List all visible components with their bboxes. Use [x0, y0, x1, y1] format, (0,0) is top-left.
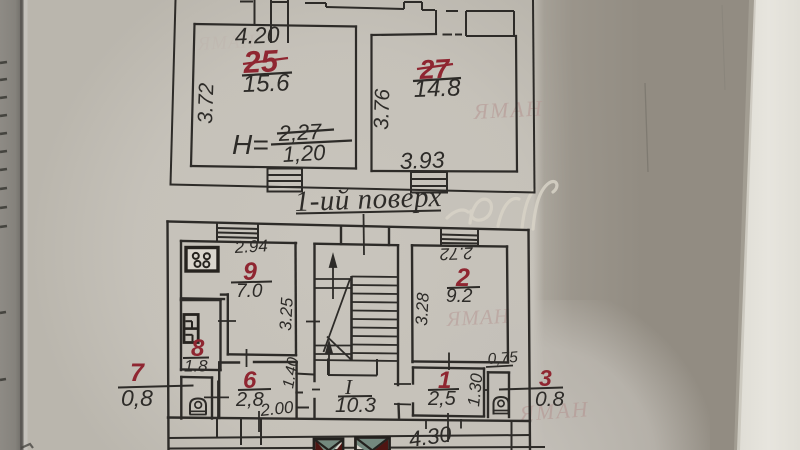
svg-text:1.30: 1.30 [464, 372, 486, 407]
svg-text:0,75: 0,75 [487, 349, 519, 368]
svg-text:2,5: 2,5 [427, 388, 457, 410]
svg-text:3.93: 3.93 [399, 146, 445, 174]
svg-text:2.94: 2.94 [233, 236, 268, 257]
svg-text:0,8: 0,8 [121, 385, 153, 411]
svg-text:2.00: 2.00 [258, 398, 294, 421]
svg-text:3.72: 3.72 [194, 82, 218, 124]
svg-text:0.8: 0.8 [535, 388, 565, 411]
svg-text:7: 7 [130, 359, 145, 387]
svg-text:3.76: 3.76 [370, 88, 394, 130]
svg-text:2.72: 2.72 [439, 243, 474, 263]
svg-text:H=: H= [232, 129, 269, 160]
svg-text:ЯМАН: ЯМАН [445, 304, 511, 331]
svg-text:4.30: 4.30 [407, 421, 454, 450]
svg-text:3.28: 3.28 [412, 292, 433, 327]
svg-text:1.8: 1.8 [184, 357, 208, 376]
svg-text:3.25: 3.25 [276, 297, 297, 332]
